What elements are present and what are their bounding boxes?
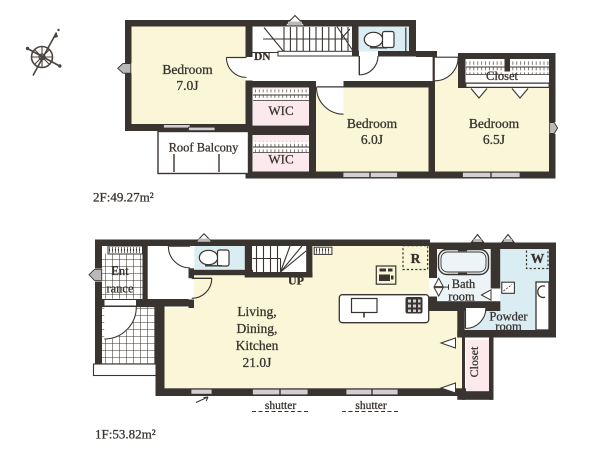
- svg-text:21.0J: 21.0J: [243, 355, 272, 370]
- svg-text:Bedroom: Bedroom: [162, 62, 213, 77]
- svg-text:WIC: WIC: [268, 103, 293, 118]
- svg-text:Dining,: Dining,: [237, 321, 278, 336]
- svg-text:2F:49.27m²: 2F:49.27m²: [93, 190, 154, 205]
- svg-text:Living,: Living,: [237, 304, 276, 319]
- svg-text:6.5J: 6.5J: [483, 132, 505, 147]
- svg-text:UP: UP: [288, 274, 304, 288]
- svg-text:6.0J: 6.0J: [361, 132, 383, 147]
- svg-text:Kitchen: Kitchen: [236, 338, 279, 353]
- svg-text:shutter: shutter: [265, 400, 296, 412]
- svg-text:Closet: Closet: [486, 69, 518, 83]
- svg-text:Ent: Ent: [111, 264, 129, 278]
- svg-text:room: room: [448, 290, 475, 304]
- svg-text:room: room: [495, 320, 522, 334]
- svg-text:W: W: [531, 251, 545, 266]
- svg-text:rance: rance: [106, 282, 134, 296]
- svg-text:Bedroom: Bedroom: [347, 116, 398, 131]
- svg-text:R: R: [411, 251, 421, 266]
- svg-text:Bedroom: Bedroom: [469, 116, 520, 131]
- svg-text:DN: DN: [254, 51, 271, 63]
- svg-text:Roof Balcony: Roof Balcony: [169, 141, 240, 155]
- svg-text:shutter: shutter: [355, 400, 386, 412]
- svg-text:1F:53.82m²: 1F:53.82m²: [95, 427, 156, 442]
- svg-text:WIC: WIC: [268, 152, 293, 167]
- svg-text:Closet: Closet: [467, 346, 481, 377]
- svg-text:7.0J: 7.0J: [176, 78, 198, 93]
